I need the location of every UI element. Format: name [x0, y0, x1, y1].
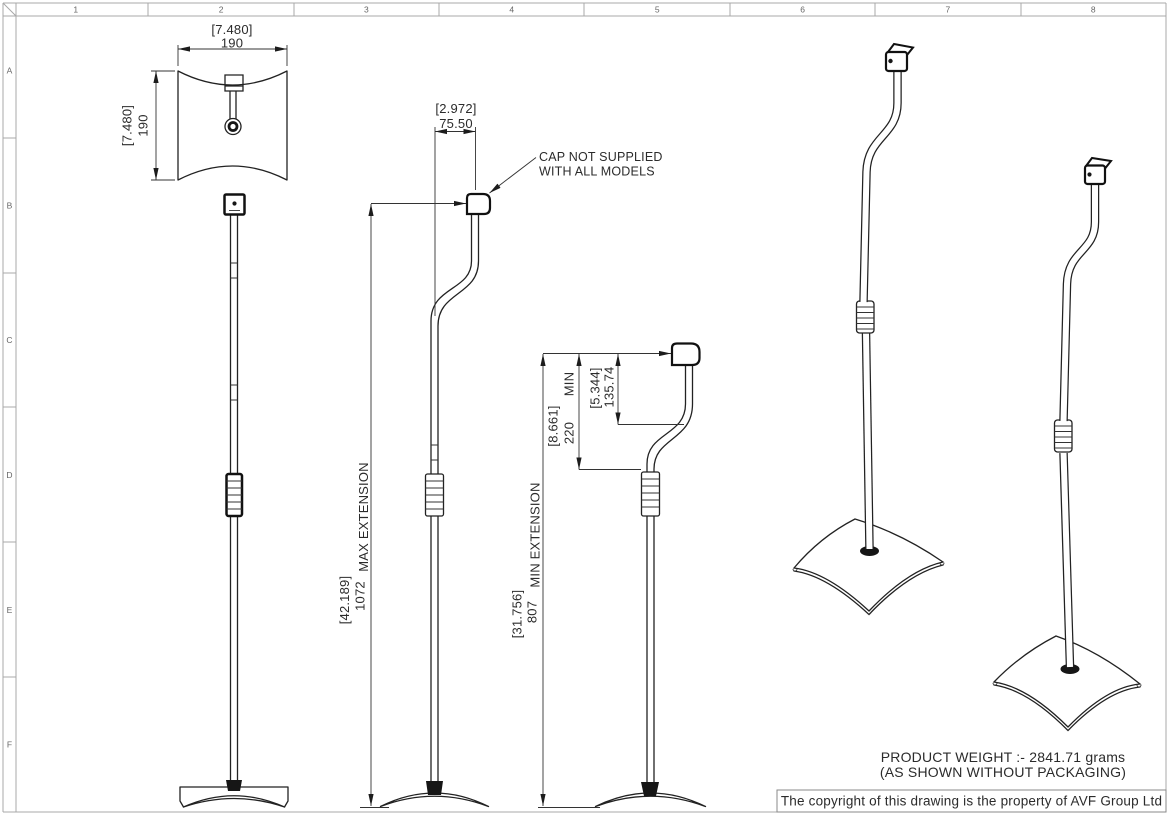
max-view-base-arcs: [381, 793, 489, 807]
column-label-4: 4: [509, 5, 514, 15]
front-view-joint-marks: [231, 263, 238, 400]
top-view-bracket: [225, 75, 243, 119]
dim-min-drop-label: MIN: [561, 372, 576, 396]
front-view-base-arcs: [184, 796, 285, 807]
dim-min-extension-mm: 807: [524, 601, 539, 623]
column-label-2: 2: [219, 5, 224, 15]
dim-min-offset-in: [5.344]: [587, 367, 602, 408]
dim-depth-in: [2.972]: [435, 101, 476, 116]
drawing-sheet: 1 2 3 4 5 6 7 8 A B C D E F [7.480] 190 …: [0, 0, 1169, 820]
iso1-cap-dot: [888, 59, 892, 63]
row-label-f: F: [7, 740, 12, 750]
max-view-cap: [467, 194, 490, 214]
cap-note-line1: CAP NOT SUPPLIED: [539, 150, 663, 164]
min-view-base-collar: [641, 782, 659, 796]
dim-min-extension-label: MIN EXTENSION: [527, 482, 542, 587]
dim-depth-mm: 75.50: [439, 116, 473, 131]
front-view: [180, 195, 288, 808]
top-view-extension-lines: [151, 45, 287, 180]
column-label-1: 1: [73, 5, 78, 15]
dim-min-drop-in: [8.661]: [545, 405, 560, 446]
cap-note-line2: WITH ALL MODELS: [539, 165, 655, 179]
notes-block: PRODUCT WEIGHT :- 2841.71 grams (AS SHOW…: [880, 749, 1126, 780]
min-view-tube: [647, 364, 693, 782]
max-view-depth-extension-lines: [435, 127, 476, 316]
iso1-collar: [857, 301, 875, 333]
top-view-boss-inner: [229, 123, 237, 131]
column-label-3: 3: [364, 5, 369, 15]
dim-max-extension-in: [42.189]: [337, 576, 352, 625]
iso-view-1: [793, 44, 944, 615]
iso1-base-thickness: [794, 565, 943, 615]
copyright-box: The copyright of this drawing is the pro…: [777, 790, 1166, 812]
front-view-cap-dot: [232, 201, 236, 205]
iso2-cap-dot: [1087, 172, 1091, 176]
dim-min-drop-mm: 220: [561, 422, 576, 444]
max-view-base-collar: [426, 781, 443, 795]
iso-view-2: [993, 158, 1141, 731]
drawing-sheet-canvas: 1 2 3 4 5 6 7 8 A B C D E F [7.480] 190 …: [0, 0, 1169, 820]
column-label-5: 5: [655, 5, 660, 15]
row-label-a: A: [7, 65, 13, 75]
dim-top-width-mm: 190: [221, 36, 243, 51]
dim-max-extension-mm: 1072: [352, 581, 367, 611]
row-label-d: D: [6, 470, 12, 480]
front-view-base-collar: [226, 780, 242, 791]
copyright-text: The copyright of this drawing is the pro…: [781, 794, 1162, 809]
dim-min-extension-in: [31.756]: [509, 590, 524, 639]
min-extension-view: MIN EXTENSION 807 [31.756] MIN 220 [8.66…: [509, 344, 705, 808]
iso1-lower-tube: [866, 332, 870, 549]
column-label-8: 8: [1091, 5, 1096, 15]
max-view-joint-marks: [431, 445, 438, 460]
iso2-collar: [1055, 420, 1073, 452]
dim-max-extension-label: MAX EXTENSION: [356, 462, 371, 572]
row-label-b: B: [7, 200, 13, 210]
min-view-cap: [672, 344, 700, 366]
product-weight-line1: PRODUCT WEIGHT :- 2841.71 grams: [881, 749, 1126, 765]
iso2-lower-tube: [1064, 452, 1071, 667]
column-label-7: 7: [946, 5, 951, 15]
dim-min-offset-mm: 135.74: [601, 367, 616, 408]
product-weight-line2: (AS SHOWN WITHOUT PACKAGING): [880, 764, 1126, 780]
top-view-base-outline: [178, 71, 287, 180]
top-view-boss-outer: [225, 119, 241, 135]
iso2-base-thickness: [994, 685, 1140, 731]
row-label-e: E: [7, 605, 13, 615]
dim-top-height-in: [7.480]: [119, 105, 134, 146]
column-label-6: 6: [800, 5, 805, 15]
dim-top-height-mm: 190: [135, 114, 150, 136]
row-label-c: C: [6, 335, 12, 345]
top-view: [7.480] 190 [7.480] 190: [119, 22, 287, 180]
max-extension-view: [2.972] 75.50 MAX EXTENSION 1072 [42.189…: [337, 101, 663, 808]
iso1-base-feet: [793, 563, 944, 614]
cap-note-leader: [490, 158, 537, 194]
iso1-upper-tube: [864, 67, 898, 303]
